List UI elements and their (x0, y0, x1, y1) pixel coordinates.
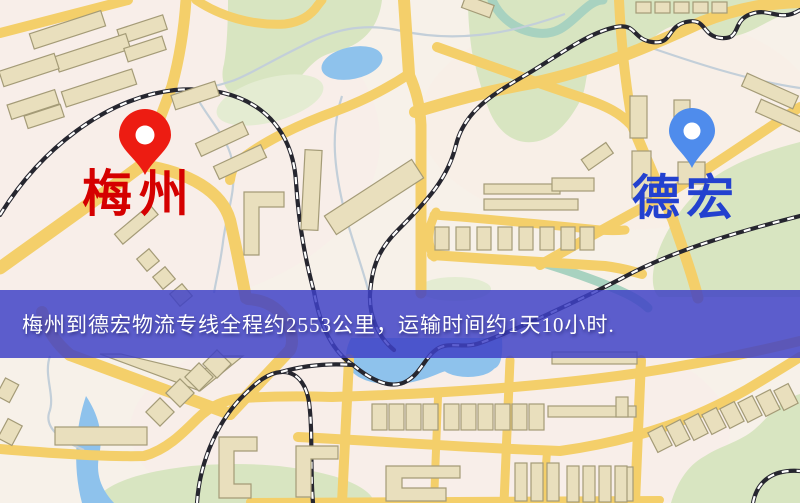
map-screenshot: 梅州 德宏 梅州到德宏物流专线全程约2553公里，运输时间约1天10小时. (0, 0, 800, 503)
destination-pin-hole (684, 123, 701, 140)
origin-pin-hole (136, 126, 155, 145)
map-canvas[interactable] (0, 0, 800, 503)
origin-city-label: 梅州 (82, 168, 196, 221)
route-banner: 梅州到德宏物流专线全程约2553公里，运输时间约1天10小时. (0, 290, 800, 358)
destination-pin[interactable] (666, 108, 718, 172)
destination-city-label: 德宏 (632, 174, 740, 224)
route-banner-text: 梅州到德宏物流专线全程约2553公里，运输时间约1天10小时. (22, 309, 615, 339)
